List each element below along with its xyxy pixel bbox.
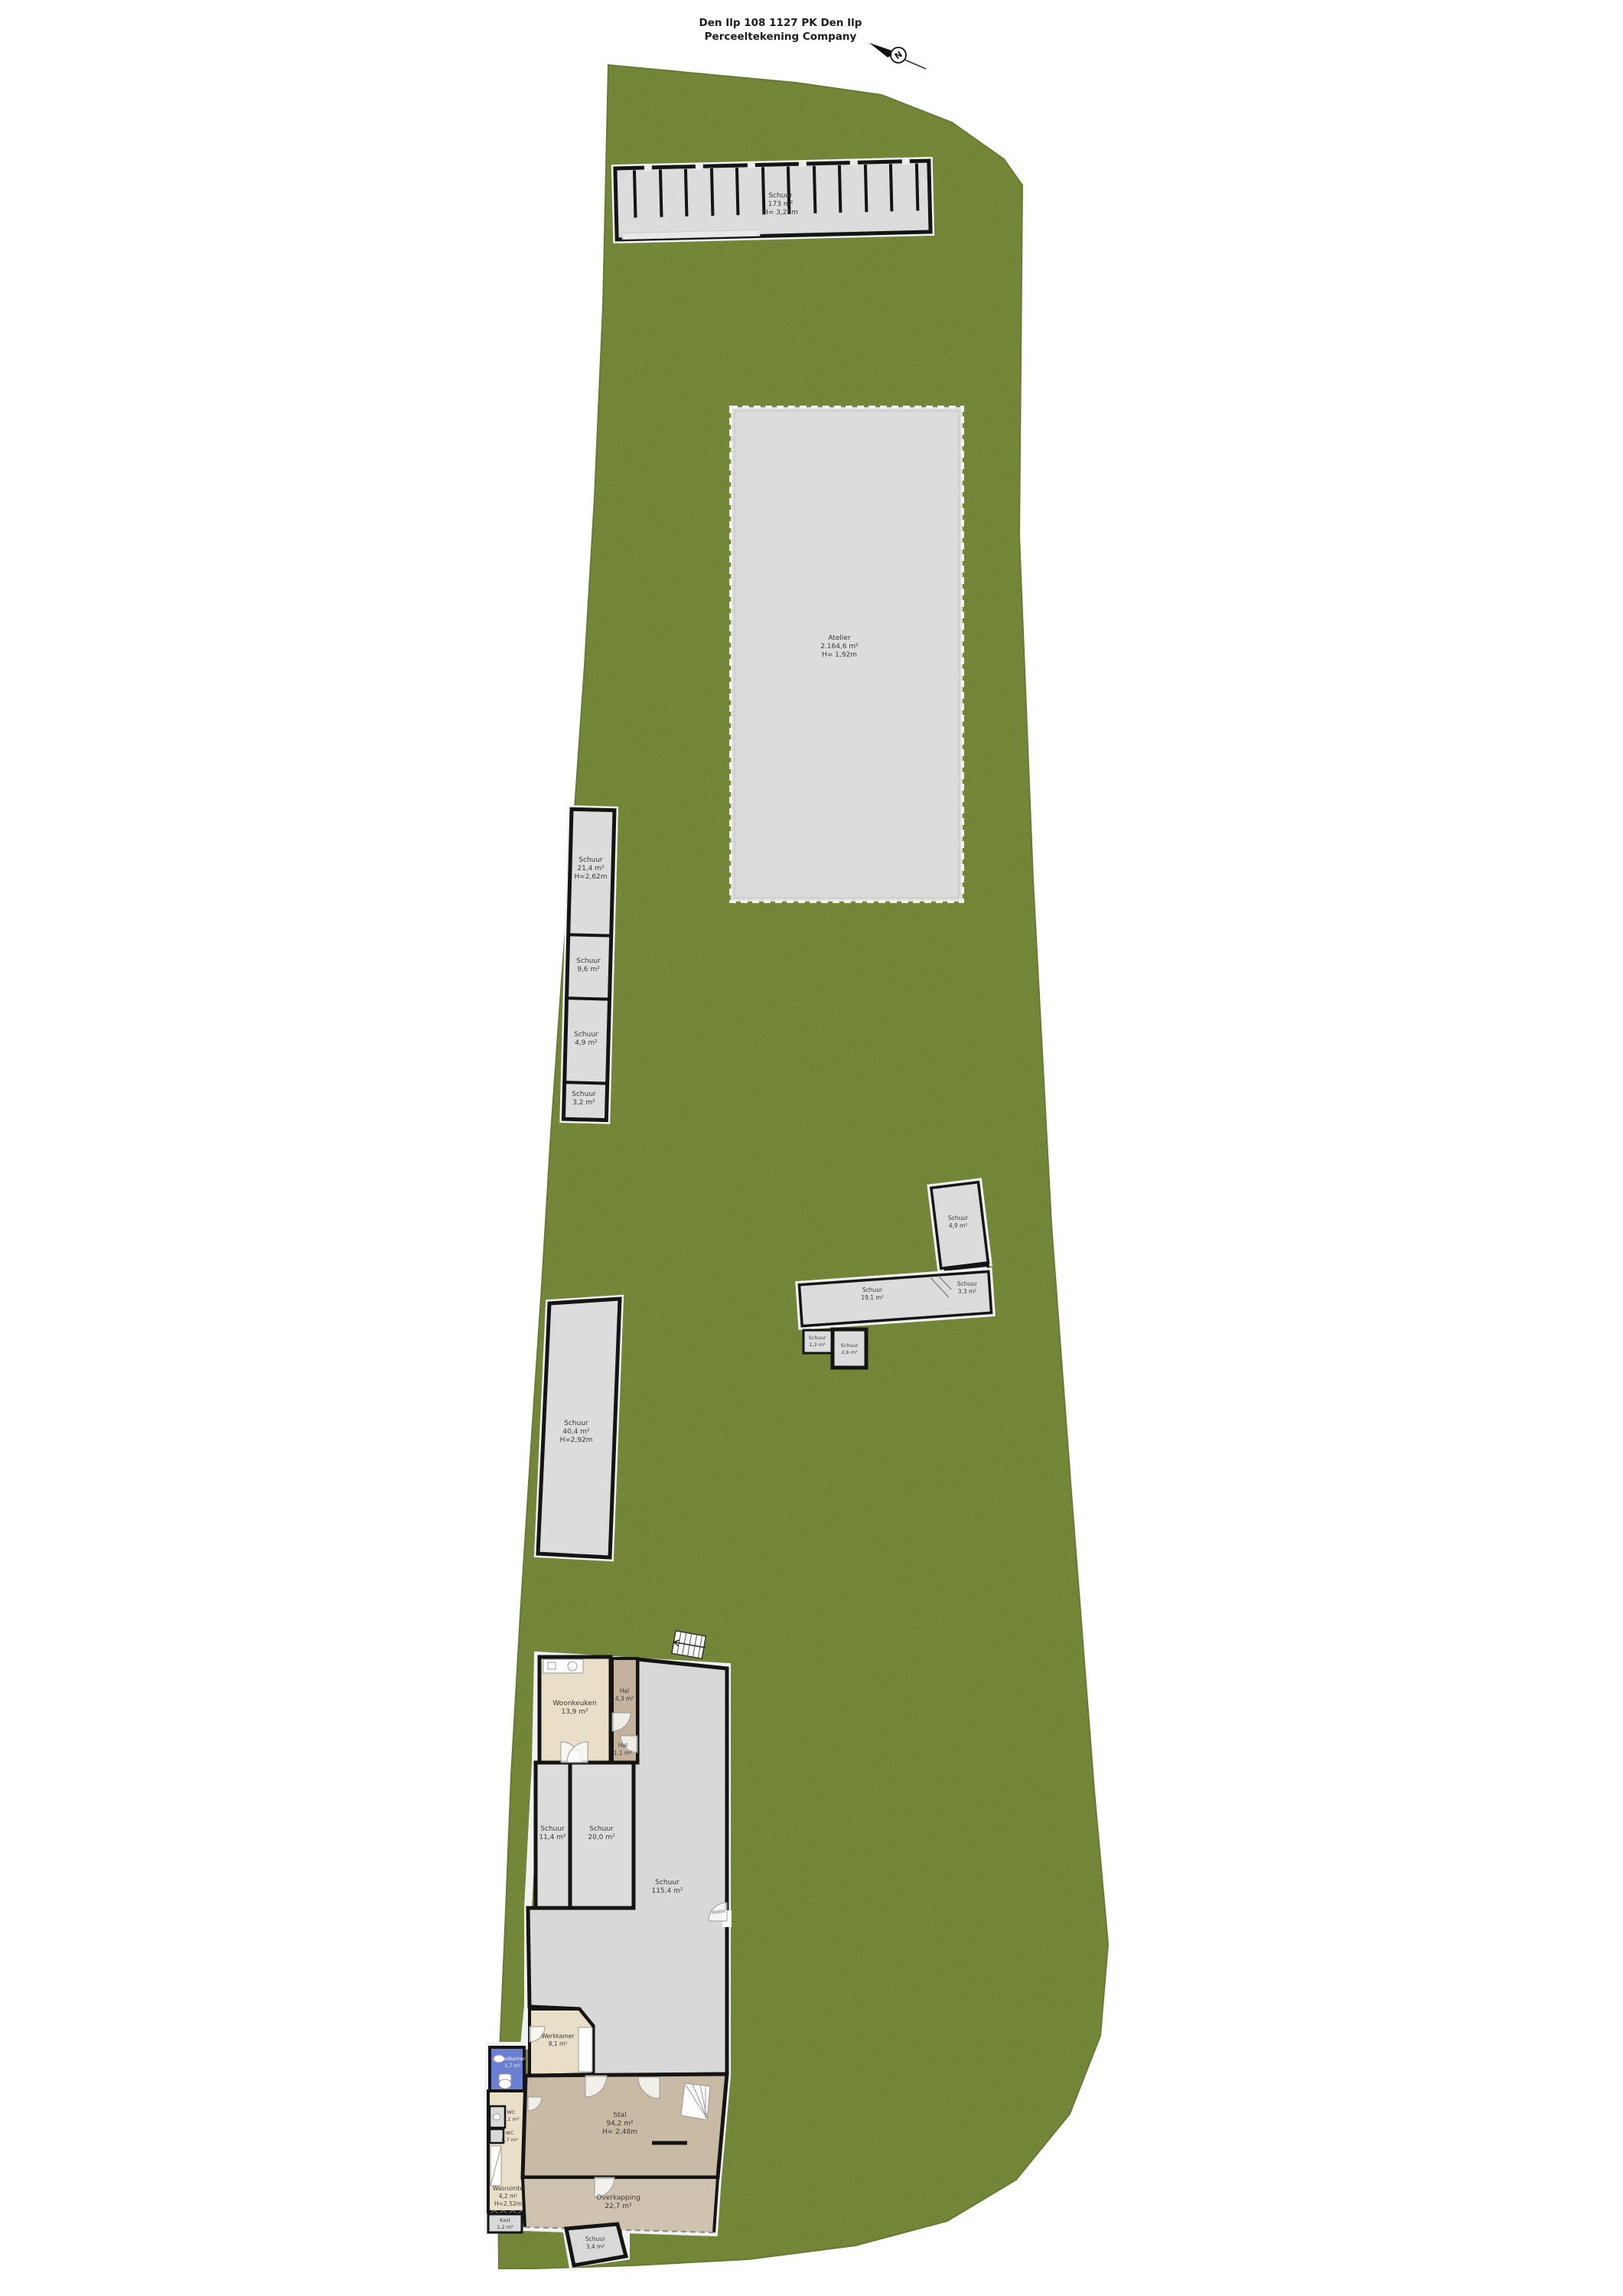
overkapping-area: 22,7 m² xyxy=(605,2203,632,2210)
hal1-name: Hal xyxy=(620,1688,629,1694)
werkkamer-closet xyxy=(578,2027,592,2072)
building-mid-e xyxy=(833,1329,866,1368)
barn-area: 40,4 m² xyxy=(562,1428,590,1436)
werkkamer-area: 8,1 m² xyxy=(549,2040,568,2047)
overkapping-name: Overkapping xyxy=(596,2194,640,2202)
perceel-drawing-page: Schuur 173 m² H= 3,28m Atelier 2.164,6 m… xyxy=(0,0,1623,2296)
stable-label-name: Schuur xyxy=(768,192,793,200)
mid-a-area: 4,9 m² xyxy=(949,1222,968,1229)
field-shed-label-height: H= 1,92m xyxy=(822,651,857,659)
barn-height: H=2,92m xyxy=(559,1437,592,1444)
kamer2-name: Schuur xyxy=(589,1825,614,1833)
wasruimte-name: Wasruimte xyxy=(493,2185,524,2192)
mid-d-area: 1,3 m² xyxy=(809,1342,826,1348)
stall-gap xyxy=(644,165,652,171)
wc2-area: 0,7 m² xyxy=(501,2137,518,2143)
mid-e-outline xyxy=(833,1329,866,1368)
north-arrow: N xyxy=(869,43,926,69)
kast-name: Kast xyxy=(500,2217,511,2223)
hal2-area: 1,1 m² xyxy=(614,1750,633,1756)
stall-gap xyxy=(748,163,755,168)
kamer1-name: Schuur xyxy=(540,1825,565,1833)
mid-e-name: Schuur xyxy=(841,1342,859,1349)
schuurtje-name: Schuur xyxy=(585,2236,606,2242)
stall-gap xyxy=(799,161,807,167)
site-plan-svg: Schuur 173 m² H= 3,28m Atelier 2.164,6 m… xyxy=(0,0,1623,2296)
toilet-bowl-icon xyxy=(499,2079,511,2089)
barn-name: Schuur xyxy=(564,1420,588,1427)
hal2-name: Hal xyxy=(618,1742,627,1749)
strip2-name: Schuur xyxy=(576,957,601,965)
mid-a-name: Schuur xyxy=(948,1215,969,1221)
title-subtitle: Perceeltekening Company xyxy=(658,31,903,44)
field-shed-label-name: Atelier xyxy=(828,634,851,642)
mid-c-area: 19,1 m² xyxy=(861,1294,883,1301)
schuurtje-area: 3,4 m² xyxy=(586,2243,605,2250)
wc1-toilet-icon xyxy=(493,2114,500,2120)
wc1-area: 1,1 m² xyxy=(503,2116,520,2122)
garage-area: 115,4 m² xyxy=(651,1887,683,1895)
wasruimte-area: 4,2 m² xyxy=(499,2193,518,2200)
stal-area: 94,2 m² xyxy=(606,2120,634,2128)
strip3-area: 4,9 m² xyxy=(575,1039,598,1047)
kamer1-area: 11,4 m² xyxy=(539,1834,566,1841)
stal-height: H= 2,48m xyxy=(602,2128,637,2136)
stable-label-area: 173 m² xyxy=(768,201,794,208)
badkamer-name: Badkamer xyxy=(500,2056,526,2062)
woonkeuken-name: Woonkeuken xyxy=(552,1700,596,1707)
kitchen-hob-icon xyxy=(548,1662,556,1669)
title-block: Den Ilp 108 1127 PK Den Ilp Perceelteken… xyxy=(658,17,903,44)
mid-b-name: Schuur xyxy=(957,1280,978,1287)
exterior-stairs xyxy=(672,1631,708,1659)
stable-label-height: H= 3,28m xyxy=(763,209,798,217)
strip1-area: 21,4 m² xyxy=(577,865,605,872)
stal-name: Stal xyxy=(613,2112,626,2119)
strip4-area: 3,2 m² xyxy=(572,1099,595,1107)
badkamer-area: 1,7 m² xyxy=(504,2063,521,2069)
kamer2-area: 20,0 m² xyxy=(588,1834,615,1841)
strip3-name: Schuur xyxy=(574,1031,598,1039)
wc1-name: WC xyxy=(507,2109,516,2115)
wasruimte-height: H=2,52m xyxy=(494,2200,522,2207)
strip1-name: Schuur xyxy=(578,856,603,864)
werkkamer-name: Werkkamer xyxy=(542,2033,575,2040)
wc2-name: WC xyxy=(506,2130,514,2136)
mid-b-area: 3,3 m² xyxy=(958,1288,977,1295)
stall-gap xyxy=(850,160,858,165)
strip2-area: 9,6 m² xyxy=(577,966,600,974)
strip1-height: H=2,62m xyxy=(574,873,607,881)
kitchen-sink-icon xyxy=(568,1662,577,1671)
woonkeuken-area: 13,9 m² xyxy=(561,1708,588,1716)
garage-name: Schuur xyxy=(655,1879,680,1887)
title-address: Den Ilp 108 1127 PK Den Ilp xyxy=(658,17,903,31)
kast-area: 1,2 m² xyxy=(497,2224,513,2230)
mid-d-name: Schuur xyxy=(809,1335,826,1341)
hal1-area: 4,3 m² xyxy=(615,1695,634,1702)
stall-gap xyxy=(902,159,910,165)
field-shed-label-area: 2.164,6 m² xyxy=(820,643,859,651)
north-arrow-tail xyxy=(903,59,926,69)
mid-e-area: 2,6 m² xyxy=(841,1349,858,1355)
strip4-name: Schuur xyxy=(572,1091,596,1098)
stall-gap xyxy=(696,164,703,169)
mid-c-name: Schuur xyxy=(862,1287,883,1293)
